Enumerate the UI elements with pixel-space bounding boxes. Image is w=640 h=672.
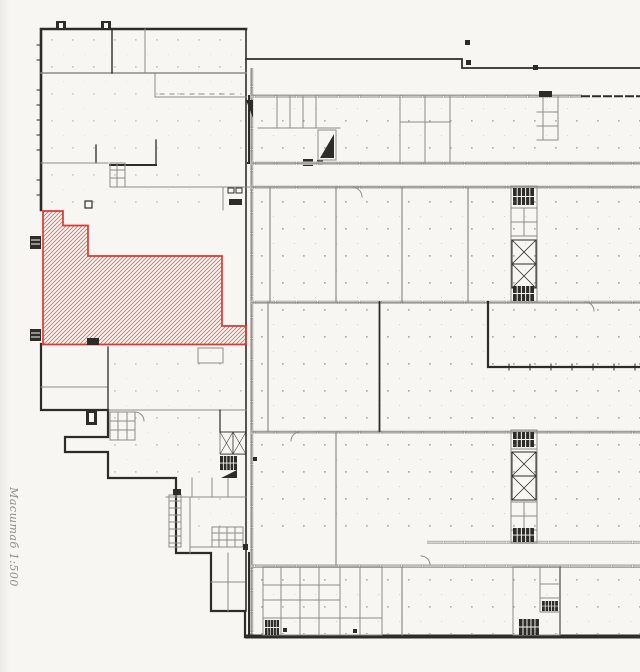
scale-label: Масштаб 1:500 [7,486,20,587]
column-mark [465,40,470,45]
floor-plan-drawing: Масштаб 1:500 [0,0,640,672]
scanned-floor-plan-page: Масштаб 1:500 [0,0,640,672]
column-mark [466,60,471,65]
column-mark [533,65,538,70]
